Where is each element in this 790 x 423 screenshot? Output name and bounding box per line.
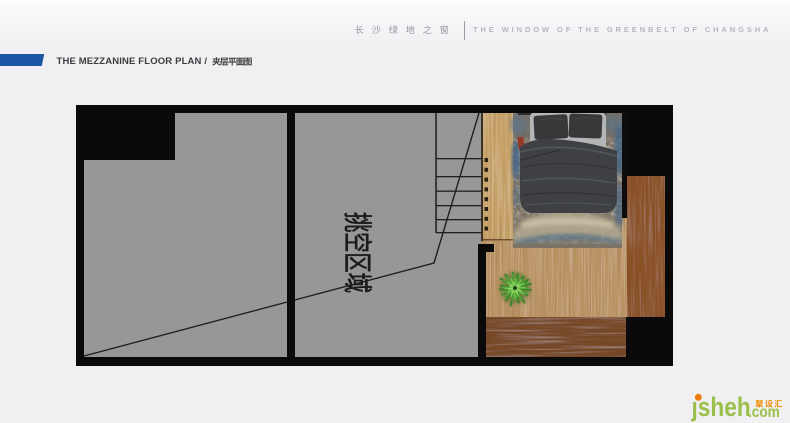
svg-text:ȷsheh: ȷsheh xyxy=(691,392,751,422)
svg-text:.com: .com xyxy=(748,404,780,421)
